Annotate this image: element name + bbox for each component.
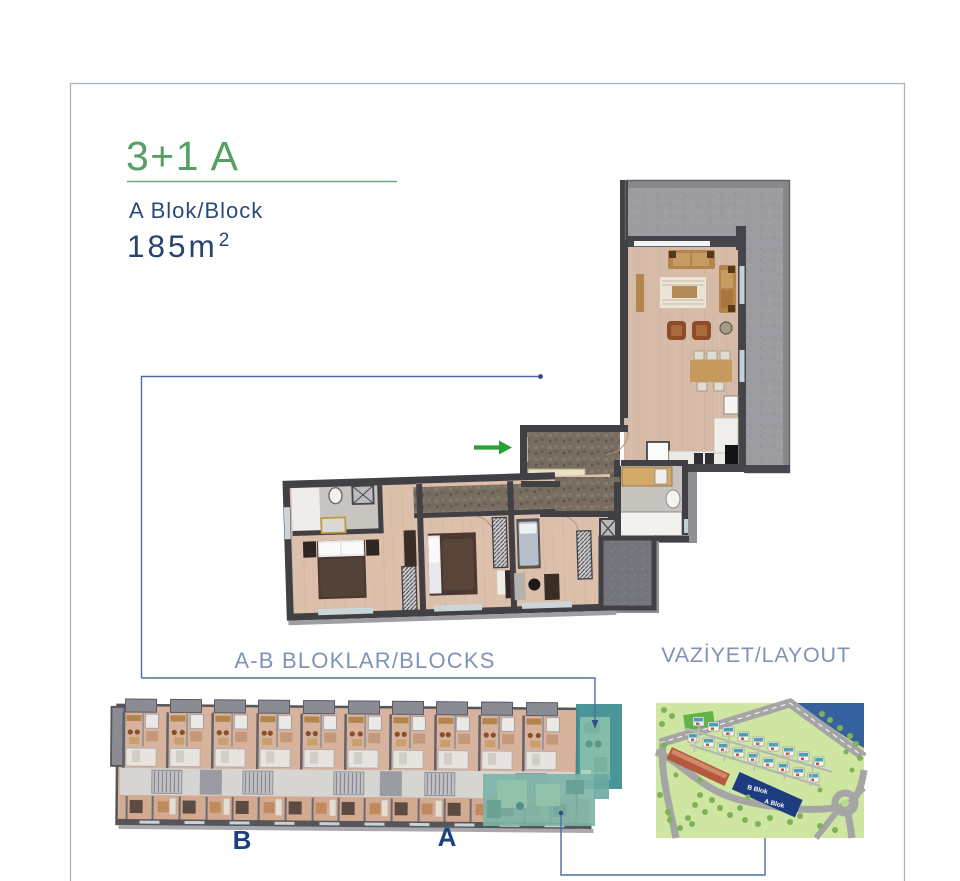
svg-text:A: A <box>438 822 457 852</box>
svg-text:A Blok/Block: A Blok/Block <box>129 198 263 223</box>
svg-text:185m2: 185m2 <box>127 228 232 264</box>
svg-text:B: B <box>233 825 252 855</box>
svg-text:VAZİYET/LAYOUT: VAZİYET/LAYOUT <box>661 643 851 667</box>
svg-text:A-B BLOKLAR/BLOCKS: A-B BLOKLAR/BLOCKS <box>234 648 495 673</box>
svg-text:3+1 A: 3+1 A <box>126 133 240 179</box>
